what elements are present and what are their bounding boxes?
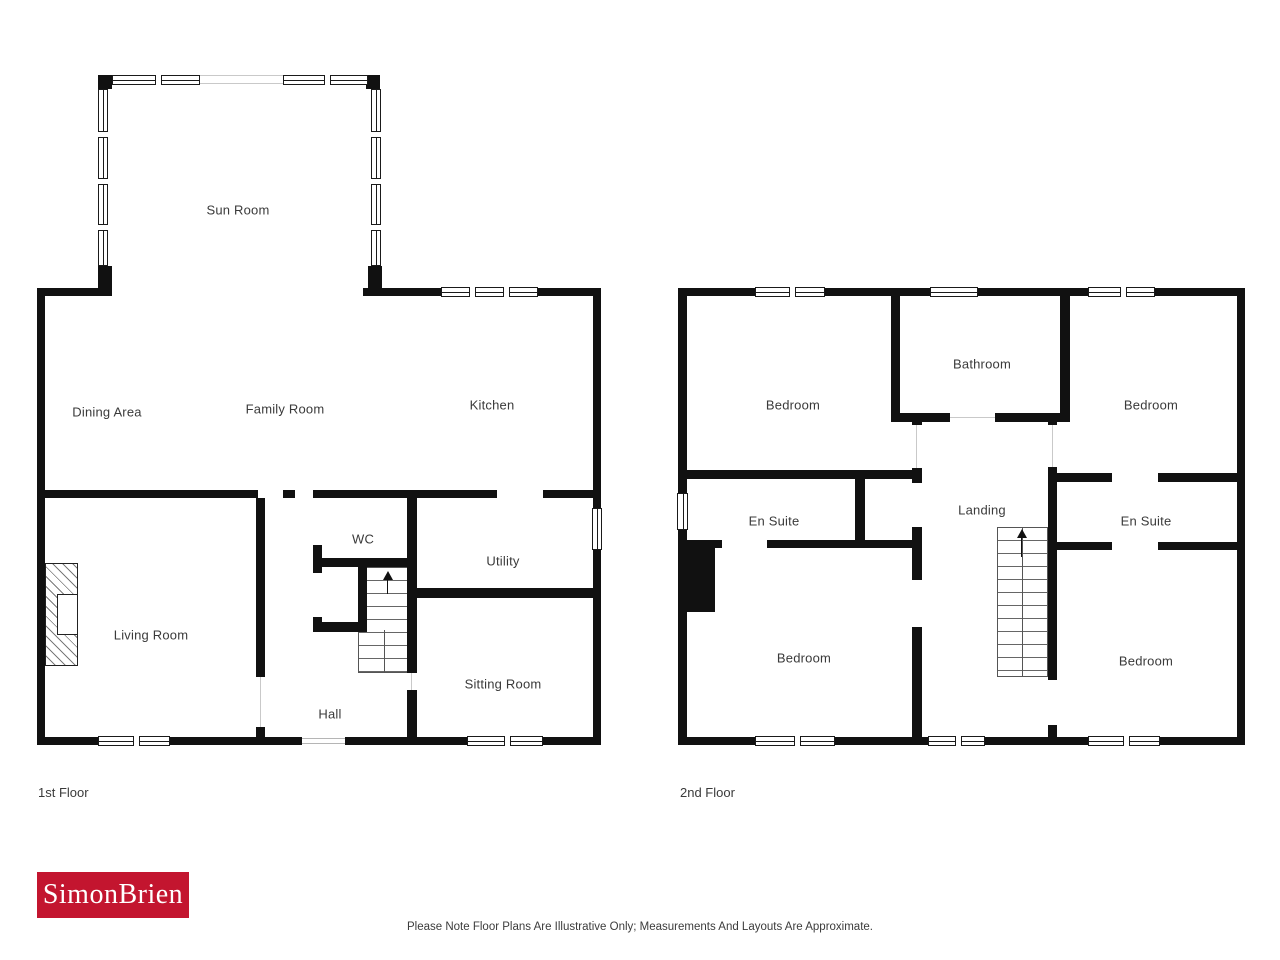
window: [371, 89, 381, 266]
window-mullion: [371, 178, 381, 185]
room-label-en-suite-left: En Suite: [749, 514, 800, 529]
agency-logo-text: SimonBrien: [43, 879, 183, 911]
floor-plan-page: Sun Room Dining Area Family Room Kitchen…: [0, 0, 1280, 960]
stairs-up-arrow-icon: [383, 571, 393, 580]
wall: [912, 413, 922, 425]
window-mullion: [371, 224, 381, 231]
wall: [891, 296, 900, 415]
wall: [912, 627, 922, 737]
stairs-up-arrow-icon: [387, 579, 388, 594]
wall: [407, 498, 417, 673]
room-label-sitting-room: Sitting Room: [465, 677, 542, 692]
stairs-up-arrow-icon: [1021, 537, 1022, 557]
room-label-dining-area: Dining Area: [72, 405, 141, 420]
door-opening: [950, 417, 995, 418]
window-mullion: [955, 736, 962, 746]
wall: [678, 470, 920, 479]
window: [1088, 287, 1155, 297]
window-mullion: [155, 75, 162, 85]
wall: [256, 498, 265, 677]
wall: [313, 545, 322, 573]
wall: [37, 490, 258, 498]
wall: [358, 567, 367, 630]
floor2-caption: 2nd Floor: [680, 785, 735, 800]
room-label-bedroom-bottom-left: Bedroom: [777, 651, 831, 666]
room-label-bathroom: Bathroom: [953, 357, 1011, 372]
window-mullion: [1123, 736, 1130, 746]
disclaimer-text: Please Note Floor Plans Are Illustrative…: [0, 921, 1280, 933]
wall: [313, 490, 497, 498]
wall: [256, 727, 265, 737]
window-mullion: [1120, 287, 1127, 297]
window-mullion: [504, 736, 511, 746]
window: [283, 75, 368, 85]
wall: [1158, 542, 1245, 550]
wall: [1158, 473, 1245, 482]
window-mullion: [371, 131, 381, 138]
window-mullion: [98, 131, 108, 138]
front-door-opening: [302, 738, 345, 744]
room-label-bedroom-bottom-right: Bedroom: [1119, 654, 1173, 669]
door-opening: [411, 673, 412, 690]
window: [1088, 736, 1160, 746]
window: [755, 736, 835, 746]
window-mullion: [789, 287, 796, 297]
window-mullion: [133, 736, 140, 746]
window: [930, 287, 978, 297]
door-opening: [200, 83, 283, 84]
window: [467, 736, 543, 746]
wall: [1060, 296, 1070, 422]
wall: [995, 413, 1070, 422]
wall: [283, 490, 295, 498]
window-mullion: [794, 736, 801, 746]
wall: [1048, 725, 1057, 737]
room-label-bedroom-top-right: Bedroom: [1124, 398, 1178, 413]
window: [98, 89, 108, 266]
window: [677, 493, 688, 530]
room-label-sun-room: Sun Room: [206, 203, 269, 218]
window: [441, 287, 538, 297]
wall: [320, 558, 407, 567]
window-mullion: [324, 75, 331, 85]
room-label-kitchen: Kitchen: [470, 398, 515, 413]
room-label-landing: Landing: [958, 503, 1006, 518]
wall: [37, 288, 112, 296]
wall: [407, 690, 417, 737]
door-opening: [1052, 425, 1053, 467]
room-label-hall: Hall: [318, 707, 341, 722]
wall: [543, 490, 601, 498]
door-opening: [916, 425, 917, 468]
stairs-up-arrow-icon: [1017, 529, 1027, 538]
window-mullion: [98, 178, 108, 185]
fireplace-recess: [57, 594, 78, 635]
wall: [1237, 288, 1245, 745]
wall: [855, 479, 865, 548]
window: [112, 75, 200, 85]
room-label-living-room: Living Room: [114, 628, 188, 643]
wall: [912, 468, 922, 483]
chimney-breast: [680, 543, 715, 612]
wall: [912, 527, 922, 580]
room-label-wc: WC: [352, 532, 374, 547]
agency-logo: SimonBrien: [37, 872, 189, 918]
window: [928, 736, 985, 746]
stair-rail: [384, 630, 385, 673]
door-opening: [260, 677, 261, 727]
room-label-en-suite-right: En Suite: [1121, 514, 1172, 529]
wall: [98, 75, 112, 89]
door-opening: [200, 75, 283, 76]
floor1-caption: 1st Floor: [38, 785, 89, 800]
wall: [37, 288, 45, 745]
wall: [417, 588, 601, 598]
window: [755, 287, 825, 297]
wall: [1057, 473, 1112, 482]
window: [98, 736, 170, 746]
room-label-family-room: Family Room: [246, 402, 325, 417]
room-label-bedroom-top-left: Bedroom: [766, 398, 820, 413]
room-label-utility: Utility: [486, 554, 519, 569]
wall: [767, 540, 913, 548]
window: [592, 508, 602, 550]
wall: [366, 75, 380, 89]
stair-rail: [1022, 527, 1023, 677]
window-mullion: [469, 287, 476, 297]
wall: [1048, 467, 1057, 680]
window-mullion: [98, 224, 108, 231]
wall: [1057, 542, 1112, 550]
wall: [1048, 413, 1057, 425]
window-mullion: [503, 287, 510, 297]
